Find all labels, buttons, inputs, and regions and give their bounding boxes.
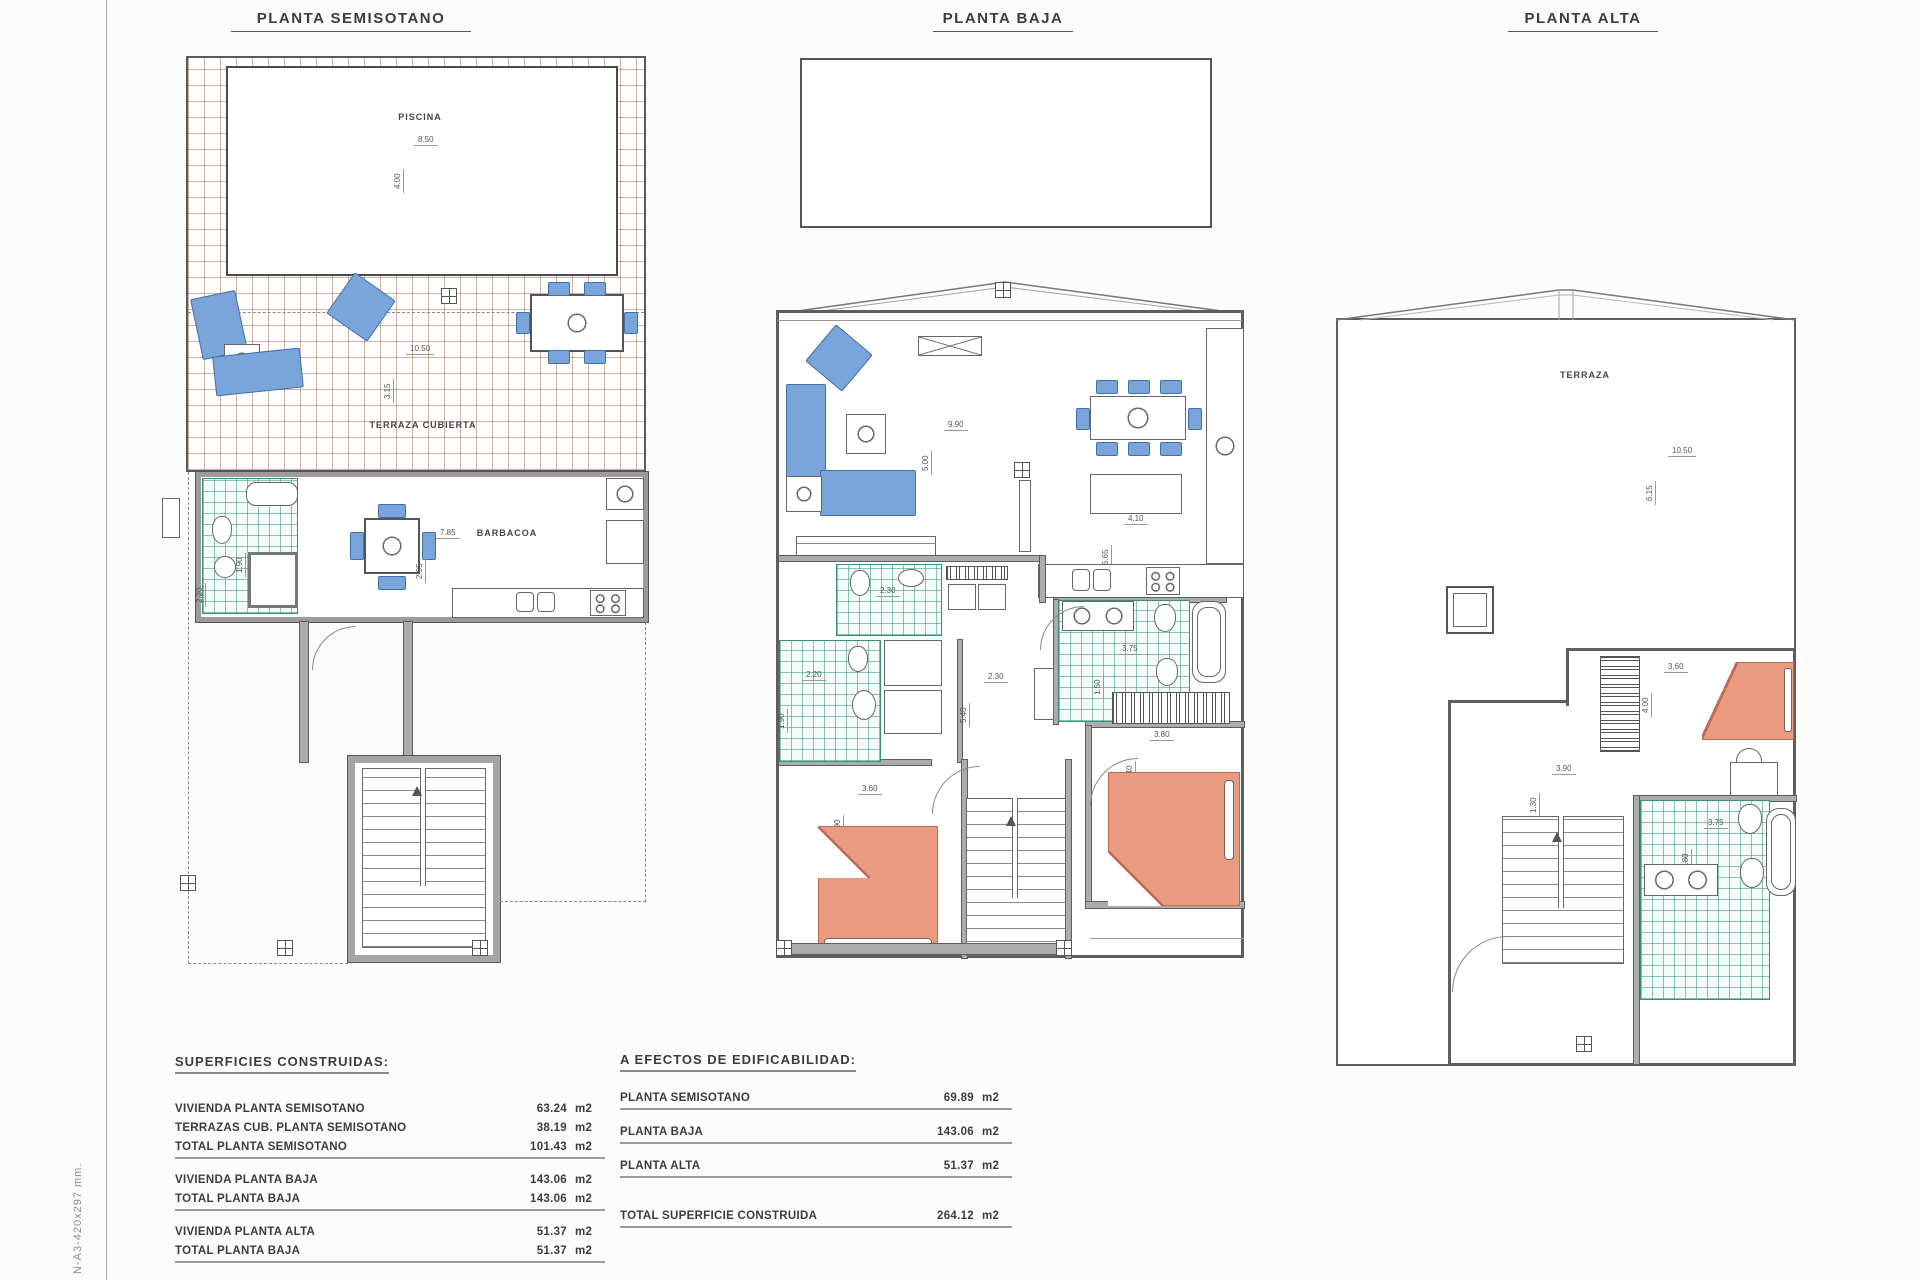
shower-box xyxy=(948,584,976,610)
kitchen-counter xyxy=(1206,328,1244,564)
dim-landing-width: 3.90 xyxy=(1552,764,1576,775)
table-total-row: TOTAL SUPERFICIE CONSTRUIDA 264.12 m2 xyxy=(620,1208,1012,1228)
closet-box xyxy=(884,690,942,734)
chair xyxy=(548,350,570,364)
dim-bed2-width: 3.80 xyxy=(1150,730,1174,741)
chair xyxy=(422,532,436,560)
chair xyxy=(584,282,606,296)
table-total-row: TOTAL PLANTA BAJA 51.37 m2 xyxy=(175,1243,605,1263)
desk xyxy=(1730,762,1778,800)
double-sink-icon xyxy=(537,592,555,612)
dim-barbacoa-height: 2.95 xyxy=(415,559,426,583)
column-marker xyxy=(776,940,792,956)
pool-label: PISCINA xyxy=(370,112,470,122)
shower-box xyxy=(978,584,1006,610)
stairs-direction-arrow xyxy=(412,786,422,796)
edificabilidad-table: A EFECTOS DE EDIFICABILIDAD: PLANTA SEMI… xyxy=(620,1052,1012,1232)
row-value: 63.24 xyxy=(509,1101,567,1117)
superficies-group: VIVIENDA PLANTA BAJA 143.06 m2 TOTAL PLA… xyxy=(175,1172,605,1211)
window-band xyxy=(778,320,1242,321)
chair xyxy=(624,312,638,334)
wall-niche xyxy=(162,498,180,538)
table-row: VIVIENDA PLANTA ALTA 51.37 m2 xyxy=(175,1224,605,1240)
plot-dashed-line xyxy=(500,901,646,902)
row-label: TOTAL PLANTA BAJA xyxy=(175,1243,509,1259)
column-marker xyxy=(277,940,293,956)
double-sink-icon xyxy=(516,592,534,612)
corridor-wall xyxy=(404,622,412,758)
dim-living-width: 9.90 xyxy=(944,420,968,431)
chair xyxy=(516,312,530,334)
storage-box xyxy=(248,552,298,608)
column-marker xyxy=(180,875,196,891)
sheet-border-line xyxy=(106,0,107,1280)
roof-lines xyxy=(1334,286,1798,322)
tall-cabinet xyxy=(1034,668,1054,720)
row-unit: m2 xyxy=(567,1224,605,1240)
bathtub-inner xyxy=(1771,814,1791,890)
dim-bath-width: 2.20 xyxy=(195,583,206,607)
tv-sideboard xyxy=(918,336,982,356)
row-value: 38.19 xyxy=(509,1120,567,1136)
dim-barbacoa-width: 7.85 xyxy=(436,528,460,539)
stairs-direction-arrow xyxy=(1552,832,1562,842)
bathtub-icon xyxy=(246,482,298,506)
coffee-table xyxy=(846,414,886,454)
dining-table xyxy=(1090,396,1186,440)
stairs-direction-arrow xyxy=(1006,816,1016,826)
row-unit: m2 xyxy=(974,1158,1012,1174)
row-label: PLANTA BAJA xyxy=(620,1124,916,1140)
door-arc xyxy=(312,626,356,670)
edificabilidad-heading: A EFECTOS DE EDIFICABILIDAD: xyxy=(620,1052,856,1072)
barbacoa-label: BARBACOA xyxy=(452,528,562,538)
chair xyxy=(548,282,570,296)
chair xyxy=(1160,380,1182,394)
dim-hall-width: 2.30 xyxy=(984,672,1008,683)
row-label: VIVIENDA PLANTA SEMISOTANO xyxy=(175,1101,509,1117)
stairs-stringer xyxy=(1012,798,1018,898)
barbacoa-table xyxy=(364,518,420,574)
interior-wall xyxy=(1634,796,1639,1064)
bed-fold xyxy=(1108,848,1166,906)
row-unit: m2 xyxy=(567,1191,605,1207)
column-marker xyxy=(472,940,488,956)
column-marker xyxy=(441,288,457,304)
upper-terrace-outline xyxy=(800,58,1212,228)
chair xyxy=(378,576,406,590)
row-unit: m2 xyxy=(567,1139,605,1155)
row-unit: m2 xyxy=(974,1208,1012,1224)
dim-bath1-width: 2.30 xyxy=(876,586,900,597)
corridor-wall xyxy=(300,622,308,762)
row-value: 51.37 xyxy=(509,1224,567,1240)
dim-terraza-height: 6.15 xyxy=(1645,481,1656,505)
side-table xyxy=(786,476,822,512)
table-row: PLANTA ALTA 51.37 m2 xyxy=(620,1158,1012,1178)
dim-terrace-height: 3.15 xyxy=(383,379,394,403)
table-row: TERRAZAS CUB. PLANTA SEMISOTANO 38.19 m2 xyxy=(175,1120,605,1136)
row-value: 143.06 xyxy=(916,1124,974,1140)
row-value: 51.37 xyxy=(916,1158,974,1174)
row-label: VIVIENDA PLANTA BAJA xyxy=(175,1172,509,1188)
sofa xyxy=(820,470,916,516)
dim-bed1-width: 3.60 xyxy=(858,784,882,795)
table-total-row: TOTAL PLANTA SEMISOTANO 101.43 m2 xyxy=(175,1139,605,1159)
kitchen-counter xyxy=(1038,564,1244,598)
bidet-icon xyxy=(1156,658,1178,686)
dim-pool-width: 8.50 xyxy=(414,135,438,146)
bed-pillow xyxy=(1784,668,1792,732)
interior-wall xyxy=(1040,556,1045,602)
row-label: PLANTA SEMISOTANO xyxy=(620,1090,916,1106)
column-marker xyxy=(1576,1036,1592,1052)
chair xyxy=(1128,442,1150,456)
row-value: 101.43 xyxy=(509,1139,567,1155)
sofa xyxy=(786,384,826,480)
dim-bath-height: 1.90 xyxy=(235,553,246,577)
chair xyxy=(1128,380,1150,394)
toilet-icon xyxy=(212,516,232,544)
interior-wall xyxy=(958,640,962,762)
table-row: VIVIENDA PLANTA BAJA 143.06 m2 xyxy=(175,1172,605,1188)
sink-icon xyxy=(852,690,876,720)
dim-bath3-width: 3.75 xyxy=(1118,644,1142,655)
toilet-icon xyxy=(1738,804,1762,834)
column-marker xyxy=(995,282,1011,298)
table-row: PLANTA BAJA 143.06 m2 xyxy=(620,1124,1012,1144)
row-unit: m2 xyxy=(567,1243,605,1259)
sheet-format-note: N-A3-420x297 mm. xyxy=(72,1163,84,1274)
terraza-label: TERRAZA xyxy=(1545,370,1625,380)
closet xyxy=(946,566,1008,580)
partition-wall xyxy=(1019,480,1031,552)
pool xyxy=(226,66,618,276)
column-marker xyxy=(1056,940,1072,956)
stove-burners-icon xyxy=(1146,567,1180,595)
wardrobe xyxy=(1600,656,1640,752)
row-value: 264.12 xyxy=(916,1208,974,1224)
sink-icon xyxy=(898,569,924,587)
table-row: VIVIENDA PLANTA SEMISOTANO 63.24 m2 xyxy=(175,1101,605,1117)
stairs-stringer xyxy=(1558,816,1564,908)
toilet-icon xyxy=(850,570,870,596)
chair xyxy=(584,350,606,364)
plot-dashed-line xyxy=(645,622,646,902)
row-unit: m2 xyxy=(974,1124,1012,1140)
dim-terrace-width: 10.50 xyxy=(406,344,434,355)
chair xyxy=(378,504,406,518)
row-unit: m2 xyxy=(974,1090,1012,1106)
sink-icon xyxy=(214,556,236,578)
dim-terraza-width: 10.50 xyxy=(1668,446,1696,457)
dim-hall-height: 5.40 xyxy=(959,703,970,727)
exterior-wall xyxy=(779,944,1067,954)
row-label: TOTAL PLANTA SEMISOTANO xyxy=(175,1139,509,1155)
bathtub-inner xyxy=(1197,607,1221,677)
skylight xyxy=(1446,586,1494,634)
superficies-table: SUPERFICIES CONSTRUIDAS: VIVIENDA PLANTA… xyxy=(175,1054,605,1280)
interior-wall xyxy=(1066,760,1071,958)
row-value: 51.37 xyxy=(509,1243,567,1259)
bed-fold xyxy=(818,826,870,878)
column-marker xyxy=(1014,462,1030,478)
dim-kitchen-width: 4.10 xyxy=(1124,514,1148,525)
bidet-icon xyxy=(1740,858,1764,888)
kitchen-sink-icon xyxy=(606,478,644,510)
chair xyxy=(1096,380,1118,394)
kitchen-island xyxy=(1090,474,1182,514)
chair xyxy=(1096,442,1118,456)
row-label: TERRAZAS CUB. PLANTA SEMISOTANO xyxy=(175,1120,509,1136)
dim-bed-height: 4.00 xyxy=(1641,693,1652,717)
row-label: TOTAL PLANTA BAJA xyxy=(175,1191,509,1207)
bed-fold xyxy=(1702,662,1746,740)
table-total-row: TOTAL PLANTA BAJA 143.06 m2 xyxy=(175,1191,605,1211)
outdoor-dining-table xyxy=(530,294,624,352)
chair xyxy=(1160,442,1182,456)
chair xyxy=(1076,408,1090,430)
bed-pillow xyxy=(1224,780,1234,860)
interior-wall xyxy=(779,556,1041,561)
covered-terrace-label: TERRAZA CUBIERTA xyxy=(348,420,498,430)
plot-dashed-line xyxy=(188,963,348,964)
superficies-group: VIVIENDA PLANTA SEMISOTANO 63.24 m2 TERR… xyxy=(175,1101,605,1159)
table-row: PLANTA SEMISOTANO 69.89 m2 xyxy=(620,1090,1012,1110)
dim-bath2-width: 2.20 xyxy=(802,670,826,681)
superficies-heading: SUPERFICIES CONSTRUIDAS: xyxy=(175,1054,389,1074)
row-unit: m2 xyxy=(567,1120,605,1136)
toilet-icon xyxy=(848,646,868,672)
double-sink-icon xyxy=(1072,569,1090,591)
dim-bed-width: 3.60 xyxy=(1664,662,1688,673)
interior-wall xyxy=(1086,726,1091,908)
shower-box xyxy=(884,640,942,686)
plan-baja-title: PLANTA BAJA xyxy=(933,10,1073,32)
superficies-group: VIVIENDA PLANTA ALTA 51.37 m2 TOTAL PLAN… xyxy=(175,1224,605,1263)
dim-living-height: 5.00 xyxy=(921,451,932,475)
wardrobe xyxy=(1112,692,1230,724)
row-unit: m2 xyxy=(567,1172,605,1188)
plan-alta-title: PLANTA ALTA xyxy=(1508,10,1658,32)
row-label: TOTAL SUPERFICIE CONSTRUIDA xyxy=(620,1208,916,1224)
porch-step-line xyxy=(1090,938,1244,939)
toilet-icon xyxy=(1154,604,1176,632)
double-sink-icon xyxy=(1093,569,1111,591)
dim-pool-height: 4.00 xyxy=(393,169,404,193)
dim-bath3-height: 1.50 xyxy=(1093,675,1104,699)
chair xyxy=(1188,408,1202,430)
row-label: VIVIENDA PLANTA ALTA xyxy=(175,1224,509,1240)
chair xyxy=(350,532,364,560)
kitchen-appliance xyxy=(606,520,644,564)
row-label: PLANTA ALTA xyxy=(620,1158,916,1174)
dim-bath-width: 3.75 xyxy=(1704,818,1728,829)
row-unit: m2 xyxy=(567,1101,605,1117)
row-value: 143.06 xyxy=(509,1172,567,1188)
row-value: 143.06 xyxy=(509,1191,567,1207)
row-value: 69.89 xyxy=(916,1090,974,1106)
double-vanity xyxy=(1644,864,1718,896)
dim-bath2-height: 1.90 xyxy=(777,709,788,733)
dim-landing-height: 1.30 xyxy=(1529,793,1540,817)
drawing-sheet: N-A3-420x297 mm. PLANTA SEMISOTANO PISCI… xyxy=(0,0,1920,1280)
plan-semisotano-title: PLANTA SEMISOTANO xyxy=(231,10,471,32)
stove-burners-icon xyxy=(590,590,626,616)
